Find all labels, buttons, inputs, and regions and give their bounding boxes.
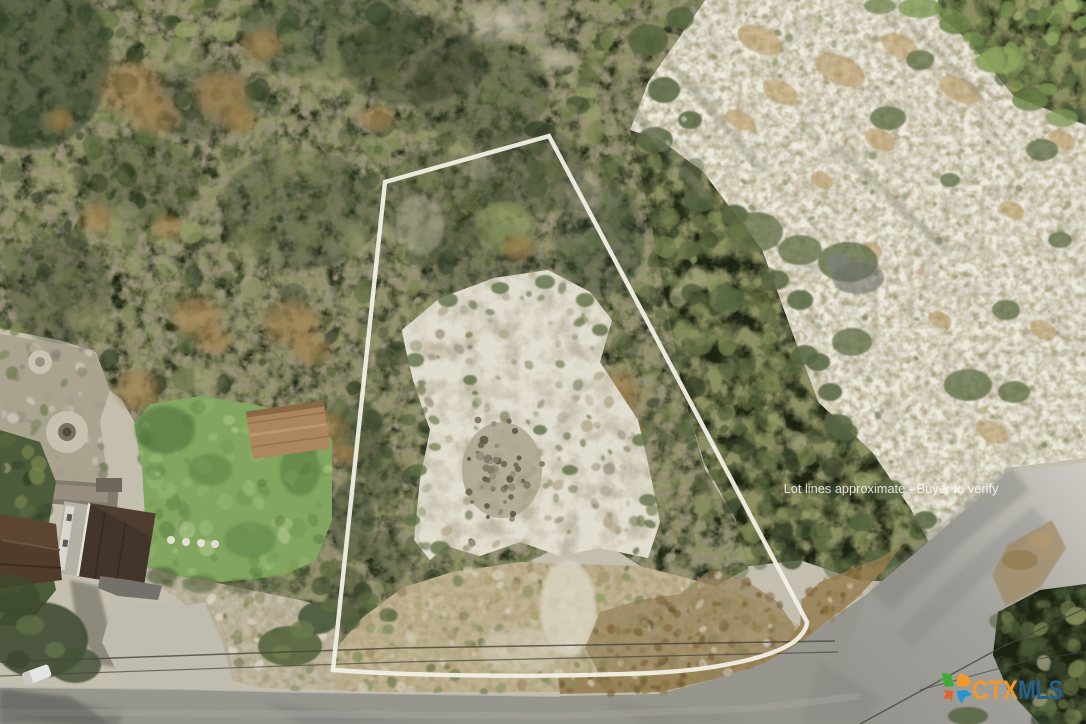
svg-text:Lot lines approximate - Buyer: Lot lines approximate - Buyer to verify: [784, 481, 999, 496]
svg-text:CTX: CTX: [972, 675, 1018, 705]
svg-text:MLS: MLS: [1018, 675, 1063, 705]
